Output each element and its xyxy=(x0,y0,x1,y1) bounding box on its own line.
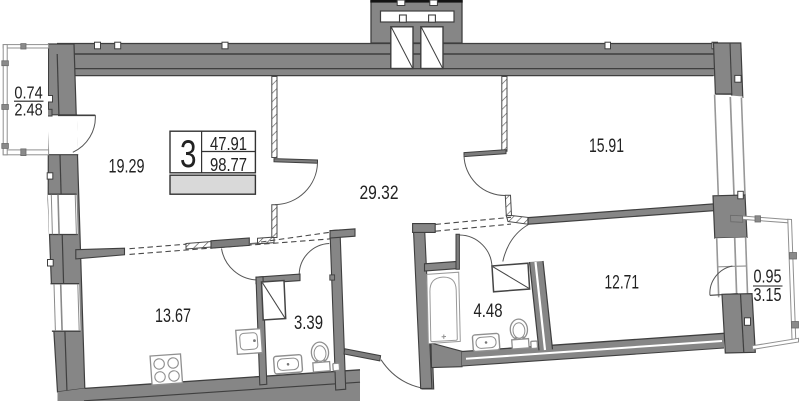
svg-text:2.48: 2.48 xyxy=(14,100,42,120)
svg-text:15.91: 15.91 xyxy=(589,135,624,157)
svg-text:12.71: 12.71 xyxy=(605,272,640,294)
svg-text:0.95: 0.95 xyxy=(754,267,782,287)
svg-text:98.77: 98.77 xyxy=(210,154,247,175)
svg-text:47.91: 47.91 xyxy=(210,133,247,154)
svg-text:29.32: 29.32 xyxy=(360,182,399,204)
svg-text:3.39: 3.39 xyxy=(294,312,323,334)
svg-text:3.15: 3.15 xyxy=(754,285,782,305)
svg-text:19.29: 19.29 xyxy=(109,156,145,178)
svg-text:4.48: 4.48 xyxy=(474,300,503,322)
svg-text:13.67: 13.67 xyxy=(155,305,191,327)
svg-text:3: 3 xyxy=(180,133,197,176)
